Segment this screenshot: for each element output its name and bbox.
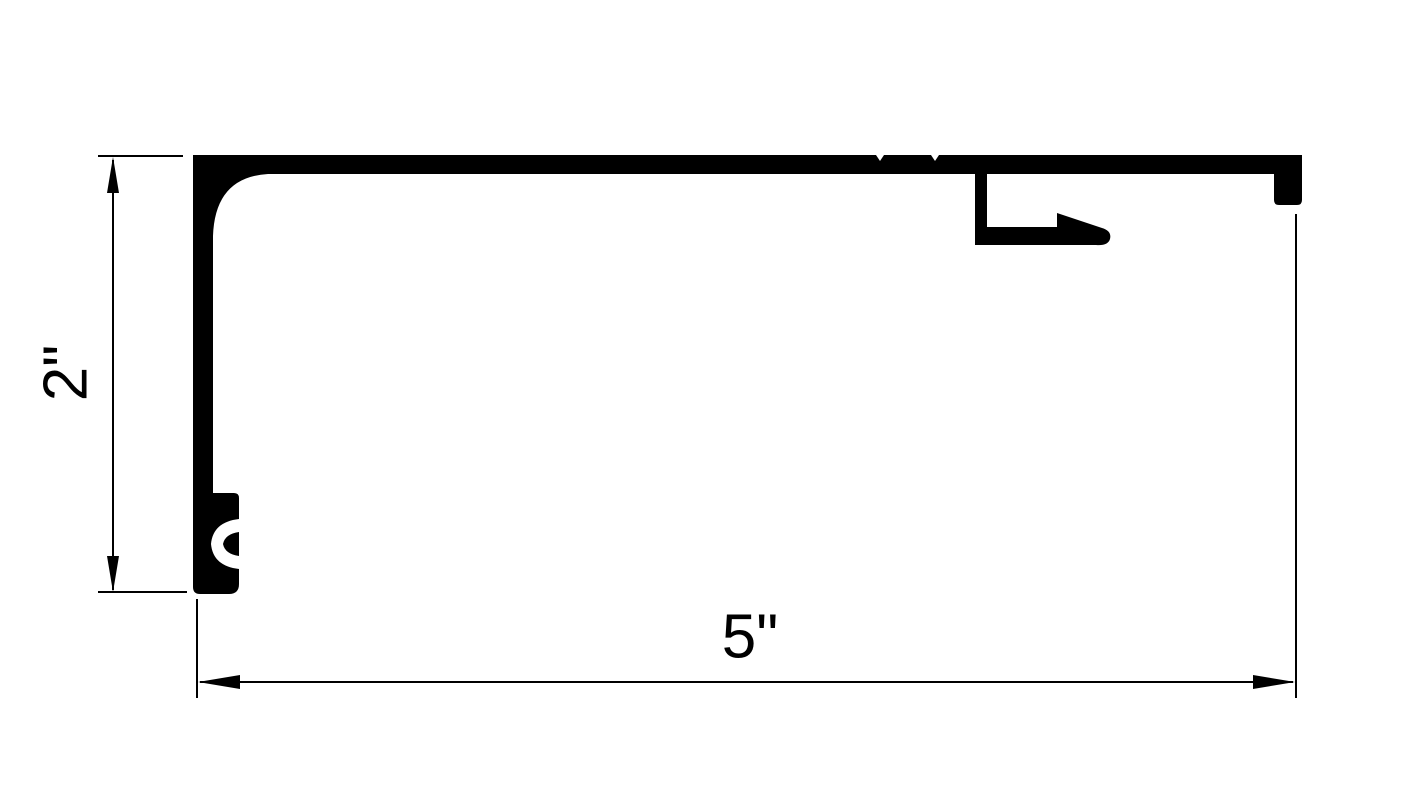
profile-hook-leg <box>975 174 1110 245</box>
profile-top-flange <box>193 155 1302 174</box>
profile-left-wall <box>193 155 213 500</box>
profile-right-end-stub <box>1274 158 1302 205</box>
arrowhead-left <box>198 675 240 689</box>
arrowhead-up <box>107 157 119 193</box>
width-dimension: 5" <box>197 214 1296 698</box>
arrowhead-down <box>107 556 119 592</box>
profile-inner-fillet <box>213 174 268 236</box>
dimension-label-width: 5" <box>722 603 779 672</box>
drawing-canvas: 2" 5" <box>0 0 1402 797</box>
arrowhead-right <box>1253 675 1295 689</box>
extrusion-profile <box>193 155 1302 594</box>
height-dimension: 2" <box>32 156 188 592</box>
dimension-label-height: 2" <box>32 345 101 402</box>
drawing-page: 2" 5" <box>0 0 1402 797</box>
